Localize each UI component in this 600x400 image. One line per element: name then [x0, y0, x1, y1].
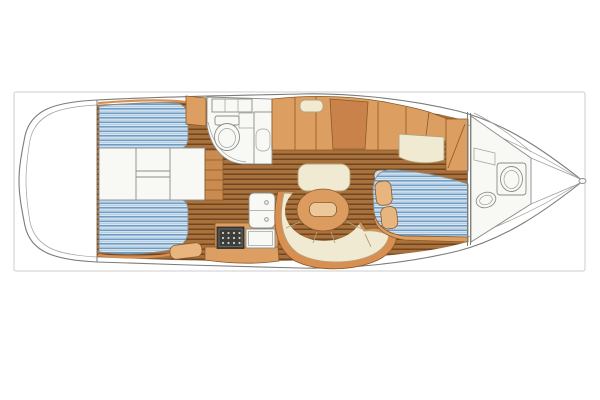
nav-seat-cushion: [300, 100, 323, 112]
aft-head-sink-unit: [254, 112, 272, 164]
settee-backrest-cushion: [298, 164, 350, 191]
bow-fitting: [579, 179, 586, 184]
engine-box: [99, 148, 205, 200]
aft-cabin-port: [99, 100, 188, 150]
galley-fridge-counter: [246, 229, 275, 248]
aft-locker: [186, 96, 206, 126]
companionway-steps: [205, 150, 223, 200]
table-inset: [310, 203, 337, 217]
steps-base: [205, 150, 223, 200]
engine-compartment: [99, 148, 205, 200]
aft-head-cabinet: [212, 99, 252, 112]
galley-counter-aft: [205, 247, 279, 263]
yacht-floor-plan: [0, 0, 600, 400]
forward-seat-cushion: [399, 134, 444, 163]
aft-cabin-starboard: [99, 198, 203, 260]
aft-port-berth-frame: [99, 103, 188, 150]
chart-table-panel: [330, 99, 368, 149]
yacht-layout-image: [0, 0, 600, 400]
